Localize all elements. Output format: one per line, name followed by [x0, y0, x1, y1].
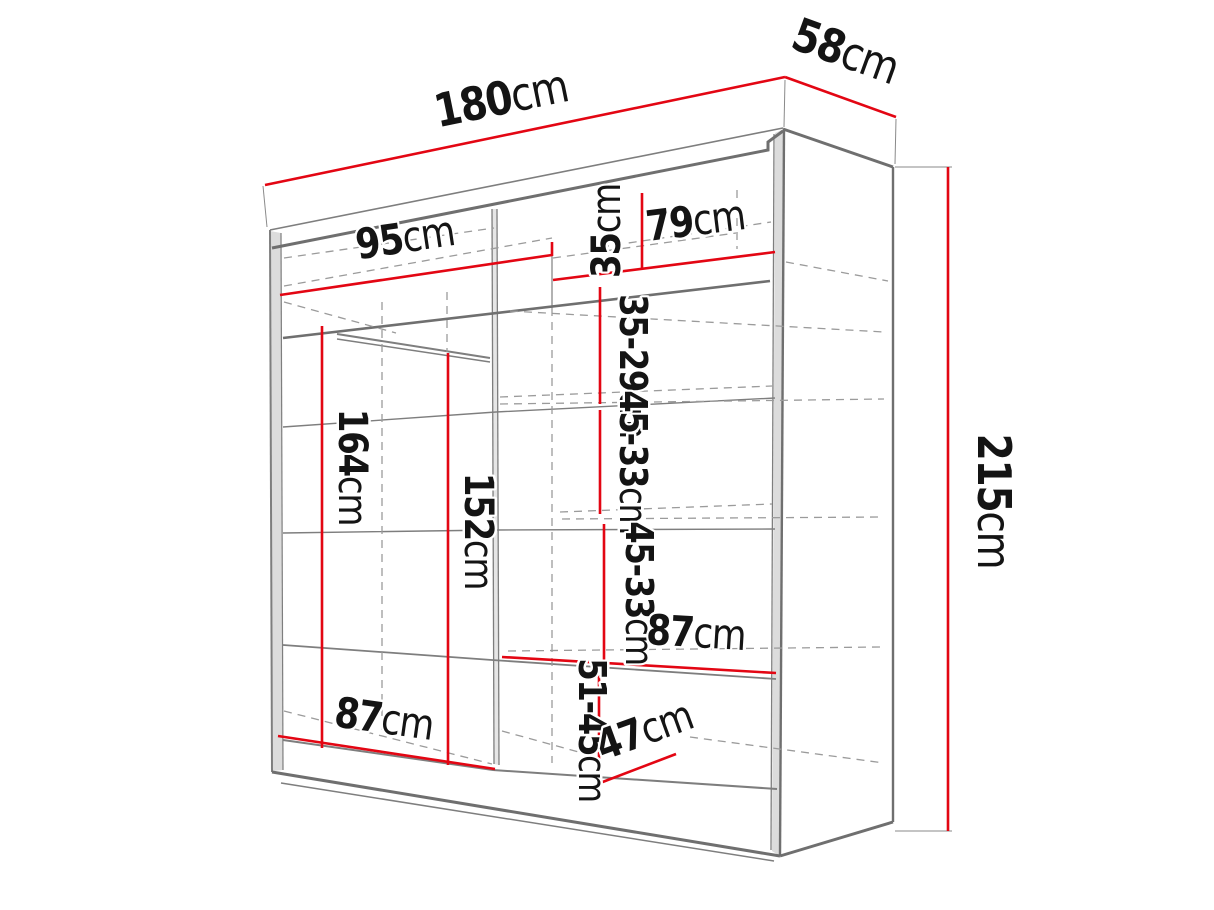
dim-label-bottom-left-width: 87cm — [331, 689, 436, 751]
dim-label-top-left-width: 95cm — [352, 207, 457, 270]
diagram-canvas: 180cm 58cm 215cm 95cm 79cm 35cm 35-29cm … — [0, 0, 1214, 910]
shelf-3-front-edge — [283, 529, 775, 533]
dimension-labels: 180cm 58cm 215cm 95cm 79cm 35cm 35-29cm … — [329, 8, 1020, 802]
clothes-rail-top — [337, 334, 490, 358]
dim-label-top-right-width: 79cm — [643, 192, 747, 252]
dim-label-right-gap-2: 45-33cm — [610, 390, 654, 534]
clothes-rail-bottom — [337, 339, 490, 362]
wardrobe-dimension-diagram: 180cm 58cm 215cm 95cm 79cm 35cm 35-29cm … — [0, 0, 1214, 910]
dim-label-total-width: 180cm — [430, 59, 573, 139]
dim-label-left-section-height: 164cm — [329, 409, 375, 525]
dim-label-right-shelf-width: 87cm — [645, 606, 747, 660]
top-shelf-front-edge — [283, 281, 770, 338]
dim-label-left-rail-height: 152cm — [455, 473, 501, 589]
cabinet-plinth-edge — [281, 783, 774, 861]
side-panel-top-edge — [783, 129, 893, 167]
dim-label-total-height: 215cm — [966, 434, 1020, 569]
side-panel-bottom-edge — [780, 822, 893, 856]
dim-label-top-compartment-height: 35cm — [583, 184, 629, 278]
